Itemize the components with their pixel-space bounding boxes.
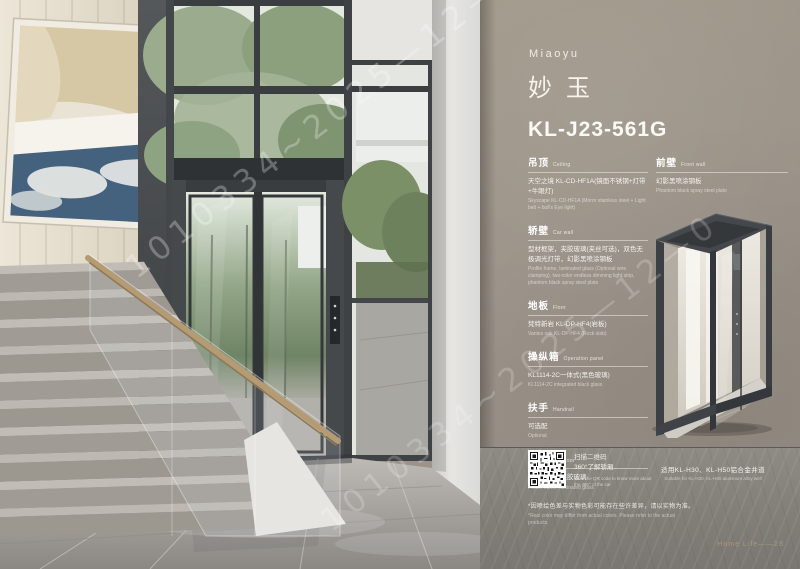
brand-name-cn: 妙玉 [528,68,604,103]
section-title-cn: 吊顶 [528,155,549,169]
qr-caption-en-line2: the 360° of the car [574,482,654,489]
spec-section-car-wall: 轿壁Car wall 型材框架，夹胶玻璃(夹丝可选)，双色无极调光灯带，幻影黑喷… [528,223,648,287]
qr-code-image [530,452,564,486]
section-body-cn: 可选配 [528,422,648,432]
interior-scene-illustration [0,0,480,569]
section-title-cn: 操纵箱 [528,349,560,363]
spec-section-floor: 地板Floor 梵特新岩 KL-DP-HF4(岩板) Vantes oak KL… [528,298,648,338]
hero-photo [0,0,480,569]
divider [528,172,648,173]
section-body-cn: 梵特新岩 KL-DP-HF4(岩板) [528,320,648,330]
section-body-en: Phantom black spray steel plate [656,188,788,195]
section-body-en: Profile frame, laminated glass (Optional… [528,266,648,287]
disclaimer-en: *Real color may differ from actual color… [528,513,688,527]
divider [656,172,788,173]
brand-name-en: Miaoyu [529,48,579,60]
spec-section-operation-panel: 操纵箱Operation panel KL1114-2C一体式(黑色玻璃) KL… [528,349,648,389]
section-title-cn: 扶手 [528,400,549,414]
spec-panel: Miaoyu 妙玉 KL-J23-561G 吊顶Ceiling 天空之境 KL-… [480,0,800,569]
section-title-cn: 轿壁 [528,223,549,237]
divider [528,240,648,241]
divider [528,315,648,316]
spec-section-ceiling: 吊顶Ceiling 天空之境 KL-CD-HF1A(镜面不锈钢+灯带+牛眼灯) … [528,155,648,212]
suitable-en: Suitable for KL-H30, KL-H50 aluminum all… [630,476,796,481]
section-title-en: Car wall [553,230,573,236]
section-body-cn: 天空之境 KL-CD-HF1A(镜面不锈钢+灯带+牛眼灯) [528,177,648,197]
section-body-en: Skyscape KL-CD-HF1A (Mirror stainless st… [528,198,648,212]
section-body-cn: KL1114-2C一体式(黑色玻璃) [528,371,648,381]
divider [528,366,648,367]
section-body-en: Vantes oak KL-DP-HF4 (Rock slab) [528,331,648,338]
section-body-en: KL1114-2C integrated black glass [528,382,648,389]
section-title-en: Ceiling [553,162,570,168]
section-body-en: Optional [528,433,648,440]
elevator-cop-panel [330,296,340,344]
suitable-cn: 适用KL-H30、KL-H50铝合金井道 [630,464,796,474]
section-body-cn: 幻影黑喷涂钢板 [656,177,788,187]
section-title-en: Operation panel [564,356,604,362]
section-body-cn: 型材框架，夹胶玻璃(夹丝可选)，双色无极调光灯带，幻影黑喷涂钢板 [528,245,648,265]
qr-code [528,450,566,488]
section-title-en: Floor [553,305,566,311]
cabin-render [648,196,778,438]
section-title-cn: 地板 [528,298,549,312]
cabin-render-illustration [648,196,778,438]
qr-caption-cn1: 扫描二维码 [574,453,654,463]
section-title-en: Front wall [681,162,706,168]
catalog-page: Miaoyu 妙玉 KL-J23-561G 吊顶Ceiling 天空之境 KL-… [0,0,800,569]
suitable-shaft-note: 适用KL-H30、KL-H50铝合金井道 Suitable for KL-H30… [630,464,796,481]
section-title-cn: 前壁 [656,155,677,169]
spec-section-front-wall: 前壁Front wall 幻影黑喷涂钢板 Phantom black spray… [656,155,788,195]
spec-section-handrail: 扶手Handrail 可选配 Optional [528,400,648,440]
color-disclaimer: *因喷绘色差与实物色彩可能存在些许差异，请以实物为准。 *Real color … [528,501,738,527]
divider [528,417,648,418]
model-number: KL-J23-561G [528,118,667,142]
section-title-en: Handrail [553,407,574,413]
page-footer: Home Life——28 [717,541,784,548]
disclaimer-cn: *因喷绘色差与实物色彩可能存在些许差异，请以实物为准。 [528,501,738,510]
